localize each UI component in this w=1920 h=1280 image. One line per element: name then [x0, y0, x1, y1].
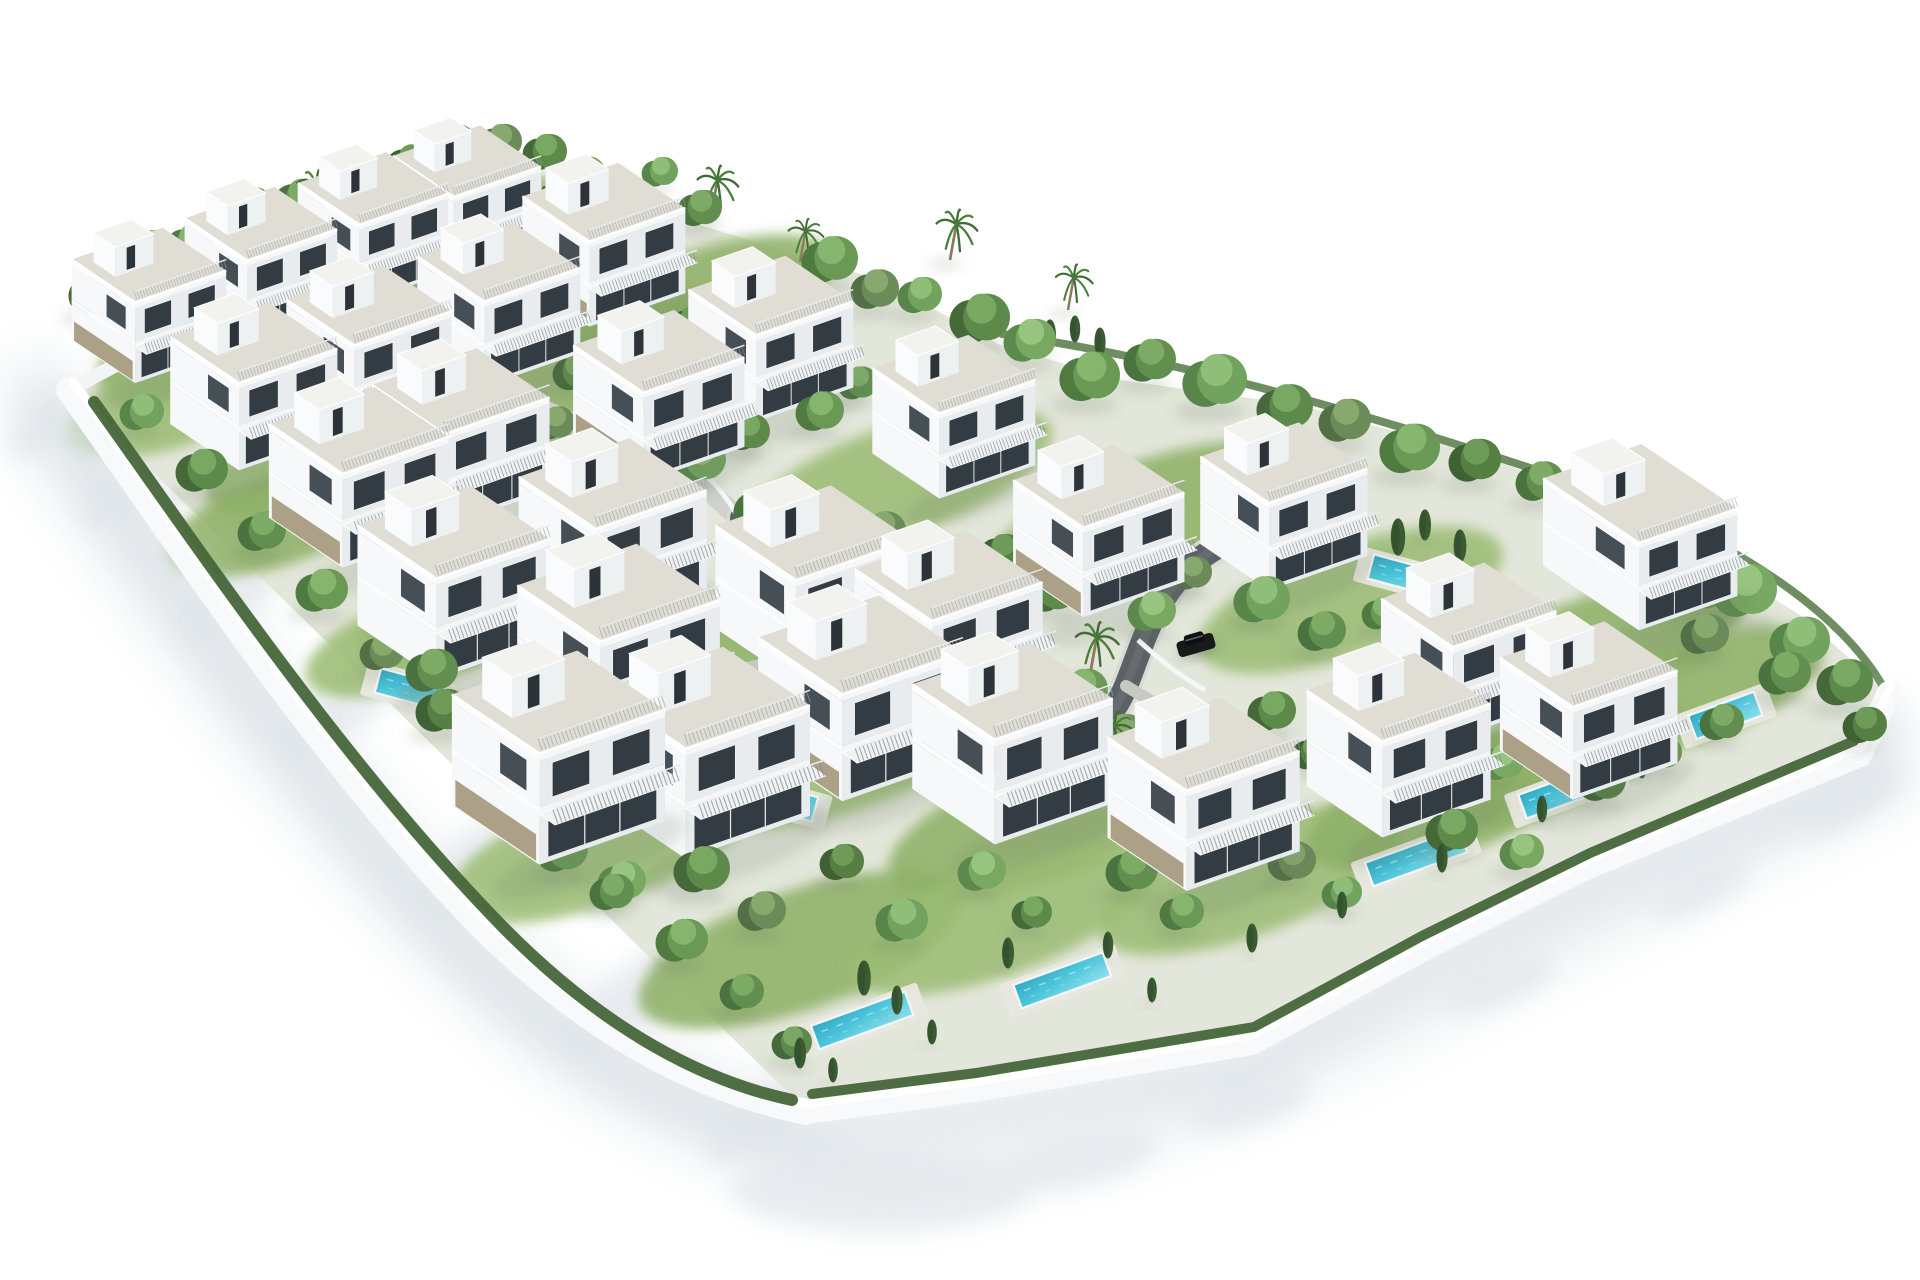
roof-box-door: [634, 329, 643, 357]
roof-box-door: [922, 551, 932, 582]
cypress-shade: [795, 1039, 801, 1068]
tree-canopy-highlight: [1141, 591, 1165, 615]
tree-canopy-highlight: [832, 844, 854, 866]
roof-box-door: [1444, 582, 1454, 611]
tree-canopy-highlight: [1712, 704, 1734, 726]
tree-canopy-highlight: [1333, 399, 1359, 425]
cypress-shadow: [1431, 871, 1448, 878]
tree-canopy-highlight: [1311, 611, 1335, 635]
palm-tree: [928, 210, 977, 270]
cypress-shadow: [886, 1013, 903, 1020]
cypress-shade: [1392, 520, 1399, 555]
roof-box-door: [747, 274, 756, 301]
tree-canopy-highlight: [652, 157, 670, 175]
tree-canopy-highlight: [689, 846, 717, 874]
tree-canopy-highlight: [602, 874, 624, 896]
palm-tree: [1048, 264, 1093, 318]
roof-box-door: [333, 407, 343, 436]
roof-box-door: [230, 321, 239, 348]
cypress-shadow: [996, 966, 1014, 973]
tree-canopy-highlight: [967, 294, 997, 324]
tree-canopy-highlight: [1463, 439, 1489, 465]
tree-canopy-highlight: [1201, 354, 1233, 386]
cypress-shade: [1438, 845, 1444, 872]
cypress-shadow: [1142, 1001, 1156, 1007]
tree-canopy-highlight: [535, 134, 557, 156]
tree-canopy-highlight: [1077, 352, 1107, 382]
tree-canopy-highlight: [751, 891, 775, 915]
tree-canopy-highlight: [732, 974, 754, 996]
cypress-shade: [893, 987, 899, 1014]
roof-box-door: [351, 169, 359, 193]
palm-frond: [956, 224, 960, 251]
tree-canopy-highlight: [1183, 556, 1203, 576]
cypress-shade: [1338, 893, 1343, 918]
tree: [1051, 352, 1120, 414]
cypress-shadow: [1531, 821, 1547, 827]
cypress-shade: [1104, 933, 1109, 958]
cypress: [1064, 315, 1080, 347]
tree-shadow-blob: [730, 1148, 1030, 1232]
tree-canopy-highlight: [1023, 896, 1043, 916]
roof-box-door: [930, 353, 939, 379]
cypress-shade: [928, 1020, 933, 1043]
cypress-shadow: [823, 1081, 837, 1087]
roof-box-door: [785, 507, 796, 539]
roof-box-door: [1074, 464, 1083, 492]
roof-box-door: [1372, 673, 1382, 703]
tree-canopy-highlight: [132, 394, 154, 416]
roof-box-door: [345, 284, 354, 311]
tree-canopy-highlight: [1694, 614, 1718, 638]
roof-box-door: [239, 204, 247, 229]
cypress-shade: [829, 1058, 834, 1081]
estate-render: [0, 0, 1920, 1280]
tree-canopy-highlight: [1512, 834, 1534, 856]
roof-box-door: [674, 670, 685, 704]
tree-canopy-highlight: [971, 851, 995, 875]
tree-canopy-highlight: [1773, 652, 1799, 678]
tree-canopy-highlight: [1172, 894, 1194, 916]
tree-canopy-highlight: [817, 236, 845, 264]
tree-canopy-highlight: [809, 391, 833, 415]
cypress-shade: [1248, 925, 1254, 952]
tree-canopy-highlight: [310, 569, 336, 595]
cypress-shade: [859, 962, 866, 995]
roof-box-door: [127, 245, 135, 270]
roof-box-door: [528, 674, 540, 709]
roof-box-door: [589, 566, 600, 599]
tree-canopy-highlight: [910, 277, 932, 299]
cypress-shade: [1148, 978, 1153, 1001]
roof-box-door: [1563, 641, 1573, 670]
tree-canopy-highlight: [1138, 339, 1164, 365]
roof-box-door: [831, 618, 842, 651]
roof-box-door: [426, 507, 436, 538]
cypress-shadow: [1064, 341, 1080, 347]
cypress-shadow: [788, 1066, 806, 1073]
roof-box-door: [1260, 441, 1269, 468]
tree: [1115, 339, 1176, 393]
cypress-shade: [1538, 797, 1543, 822]
tree-canopy-highlight: [864, 269, 888, 293]
roof-box-door: [984, 665, 995, 698]
tree-canopy-highlight: [1832, 659, 1860, 687]
tree-canopy-highlight: [890, 899, 916, 925]
tree-canopy-highlight: [1272, 384, 1300, 412]
roof-box-door: [586, 459, 596, 490]
tree-canopy-highlight: [420, 649, 446, 675]
cypress-shade: [1096, 329, 1102, 356]
cypress-shadow: [1413, 538, 1431, 545]
roof-box-door: [1176, 719, 1186, 750]
roof-box-door: [580, 181, 589, 207]
tree-canopy-highlight: [1440, 809, 1466, 835]
tree-canopy-highlight: [1397, 424, 1427, 454]
tree-canopy-highlight: [190, 449, 216, 475]
tree: [1174, 354, 1247, 421]
roof-box-door: [1616, 472, 1625, 499]
cypress-shadow: [851, 993, 871, 1001]
tree-canopy-highlight: [1018, 319, 1044, 345]
roof-box-door: [446, 142, 454, 166]
tree-canopy-highlight: [1855, 707, 1877, 729]
cypress-shadow: [1241, 951, 1258, 958]
tree-canopy-highlight: [1249, 576, 1277, 604]
tree-canopy-highlight: [670, 919, 696, 945]
cypress-shadow: [1097, 957, 1113, 963]
palm-shadow: [928, 259, 962, 270]
roof-box-door: [435, 368, 445, 397]
palm-frond: [1074, 278, 1077, 302]
roof-box-door: [475, 241, 484, 267]
cypress-shade: [1071, 317, 1076, 342]
tree-canopy-highlight: [1787, 617, 1817, 647]
cypress-shadow: [922, 1043, 936, 1049]
architectural-render: [0, 0, 1920, 1280]
cypress-shade: [1003, 939, 1009, 968]
cypress-shade: [1420, 511, 1426, 540]
cypress-shadow: [1331, 917, 1347, 923]
tree-canopy-highlight: [690, 190, 712, 212]
tree-canopy-highlight: [1261, 691, 1285, 715]
